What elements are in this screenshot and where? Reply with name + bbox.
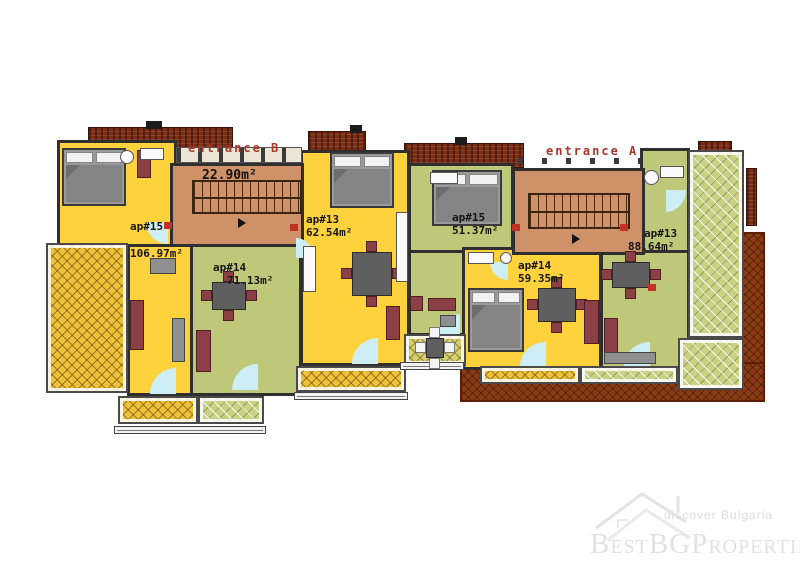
tv-cabinet bbox=[150, 258, 176, 274]
bed bbox=[62, 148, 126, 206]
balcony-left-green bbox=[198, 396, 264, 424]
chair bbox=[341, 268, 352, 279]
door-annotation bbox=[620, 224, 628, 231]
apartment-label: ap#15 106.97m² bbox=[130, 220, 183, 260]
watermark-tagline: discover Bulgaria bbox=[664, 508, 773, 522]
apartment-label: ap#15 51.37m² bbox=[452, 211, 498, 237]
sofa bbox=[196, 330, 211, 372]
armchair bbox=[410, 296, 423, 311]
apartment-label: ap#13 88.64m² bbox=[644, 227, 677, 253]
stair-direction-arrow bbox=[572, 234, 580, 244]
kitchen-unit bbox=[303, 246, 316, 292]
lower-roof-area-right-arm bbox=[742, 232, 765, 364]
balcony-railing bbox=[294, 392, 408, 400]
dining-table bbox=[612, 262, 650, 288]
dining-set bbox=[601, 251, 661, 299]
bed bbox=[330, 152, 394, 208]
dining-set bbox=[527, 277, 587, 333]
sofa bbox=[130, 300, 144, 350]
chair bbox=[444, 342, 455, 353]
chair bbox=[527, 299, 538, 310]
apartment-area: 62.54m² bbox=[306, 226, 352, 239]
apartment-id: ap#13 bbox=[644, 227, 677, 240]
terrace-left bbox=[46, 243, 128, 393]
pillows bbox=[472, 292, 520, 303]
chimney bbox=[146, 121, 162, 129]
sink bbox=[644, 170, 659, 185]
chimney bbox=[350, 125, 362, 133]
apartment-area: 88.64m² bbox=[628, 240, 677, 253]
balcony-right-yellow bbox=[480, 366, 580, 384]
staircase-entrance-a bbox=[528, 193, 630, 229]
stair-direction-arrow bbox=[238, 218, 246, 228]
pillows bbox=[334, 156, 390, 167]
entrance-a-colonnade bbox=[518, 158, 640, 164]
wardrobe bbox=[386, 306, 400, 340]
apartment-label: ap#14 71.13m² bbox=[213, 261, 273, 287]
door-annotation bbox=[648, 284, 656, 291]
floor-plan: entrance B entrance A 22.90m² ap#15 106.… bbox=[0, 0, 800, 565]
apartment-id: ap#15 bbox=[130, 220, 163, 233]
terrace-right-column bbox=[688, 150, 744, 338]
apartment-area: 59.35m² bbox=[518, 272, 564, 285]
sofa bbox=[428, 298, 456, 311]
blanket bbox=[334, 169, 390, 204]
chair bbox=[246, 290, 257, 301]
apartment-area: 71.13m² bbox=[227, 274, 273, 287]
bath-fixture bbox=[660, 166, 684, 178]
watermark: discover Bulgaria BestBGProperties bbox=[588, 484, 800, 564]
chair bbox=[625, 288, 636, 299]
patio-table bbox=[426, 338, 444, 358]
balcony-right-green bbox=[580, 366, 678, 384]
sink bbox=[500, 252, 512, 264]
chair bbox=[223, 310, 234, 321]
balcony-center bbox=[296, 366, 406, 392]
door-annotation bbox=[512, 224, 520, 231]
apartment-label: ap#14 59.35m² bbox=[518, 259, 564, 285]
chair bbox=[601, 269, 612, 280]
apartment-label: ap#13 62.54m² bbox=[306, 213, 352, 239]
bath-fixture bbox=[468, 252, 494, 264]
cabinet bbox=[440, 315, 456, 327]
blanket bbox=[472, 305, 520, 348]
roof-strip bbox=[308, 131, 366, 152]
chair bbox=[366, 241, 377, 252]
roof-strip bbox=[746, 168, 757, 226]
apartment-id: ap#14 bbox=[213, 261, 246, 274]
patio-set bbox=[415, 327, 455, 369]
balcony-left-yellow bbox=[118, 396, 198, 424]
bed bbox=[468, 288, 524, 352]
staircase-entrance-b bbox=[192, 180, 302, 214]
apartment-id: ap#13 bbox=[306, 213, 339, 226]
chimney bbox=[455, 137, 467, 145]
terrace-right-column-lower bbox=[678, 338, 744, 390]
door-annotation bbox=[290, 224, 298, 231]
pillows bbox=[66, 152, 122, 163]
entrance-a-label: entrance A bbox=[546, 144, 638, 158]
chair bbox=[366, 296, 377, 307]
dining-table bbox=[352, 252, 392, 296]
sink bbox=[120, 150, 134, 164]
watermark-brand: BestBGProperties bbox=[590, 528, 800, 561]
sofa bbox=[584, 300, 599, 344]
entrance-b-label: entrance B bbox=[188, 141, 280, 155]
balcony-railing bbox=[114, 426, 266, 434]
bath-fixture bbox=[140, 148, 164, 160]
dining-table bbox=[538, 288, 576, 322]
apartment-id: ap#15 bbox=[452, 211, 485, 224]
apartment-id: ap#14 bbox=[518, 259, 551, 272]
apartment-area: 106.97m² bbox=[130, 247, 183, 260]
stairwell-area-label: 22.90m² bbox=[202, 168, 257, 183]
tv-cabinet bbox=[172, 318, 185, 362]
chair bbox=[429, 327, 440, 338]
kitchen-unit bbox=[396, 212, 408, 282]
chair bbox=[201, 290, 212, 301]
apartment-area: 51.37m² bbox=[452, 224, 498, 237]
bath-fixture bbox=[430, 172, 458, 184]
cabinet bbox=[604, 352, 656, 364]
chair bbox=[650, 269, 661, 280]
chair bbox=[551, 322, 562, 333]
blanket bbox=[66, 165, 122, 202]
chair bbox=[429, 358, 440, 369]
chair bbox=[415, 342, 426, 353]
dining-set bbox=[341, 241, 403, 307]
